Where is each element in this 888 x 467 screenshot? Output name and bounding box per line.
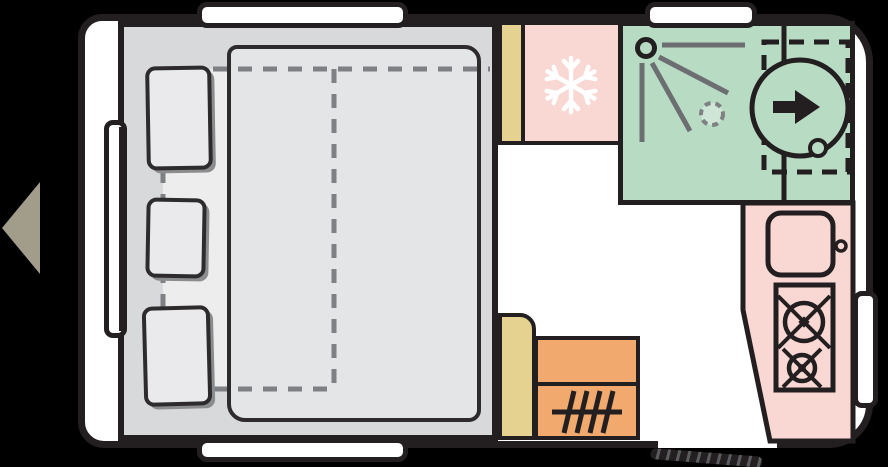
burner-icon xyxy=(783,349,821,387)
tow-arrow-icon xyxy=(2,182,40,274)
cabinet-rear xyxy=(498,313,536,440)
bathroom-fixtures xyxy=(618,21,855,205)
burner-icon xyxy=(778,296,830,348)
shower-head-icon xyxy=(638,40,655,57)
pillow xyxy=(145,65,213,170)
window-bath-top xyxy=(645,2,757,28)
window-frame-line xyxy=(119,127,122,331)
window-front-top xyxy=(197,2,408,28)
entry-step xyxy=(650,448,763,467)
window-right xyxy=(853,291,878,408)
shower-drain-icon xyxy=(701,103,723,125)
fridge xyxy=(521,21,622,145)
pillow xyxy=(145,197,206,278)
window-front-bottom xyxy=(197,438,408,462)
shower-spray-icon xyxy=(642,45,745,142)
heater-coil-icon xyxy=(534,386,640,440)
window-left xyxy=(104,120,127,338)
pillow xyxy=(142,305,213,407)
kitchen-counter xyxy=(743,203,853,441)
toilet-flush-knob xyxy=(810,140,826,156)
snowflake-icon xyxy=(525,25,618,141)
heater-cabinet-top xyxy=(538,340,636,386)
tap-icon xyxy=(836,241,846,251)
floorplan-canvas xyxy=(0,0,888,467)
